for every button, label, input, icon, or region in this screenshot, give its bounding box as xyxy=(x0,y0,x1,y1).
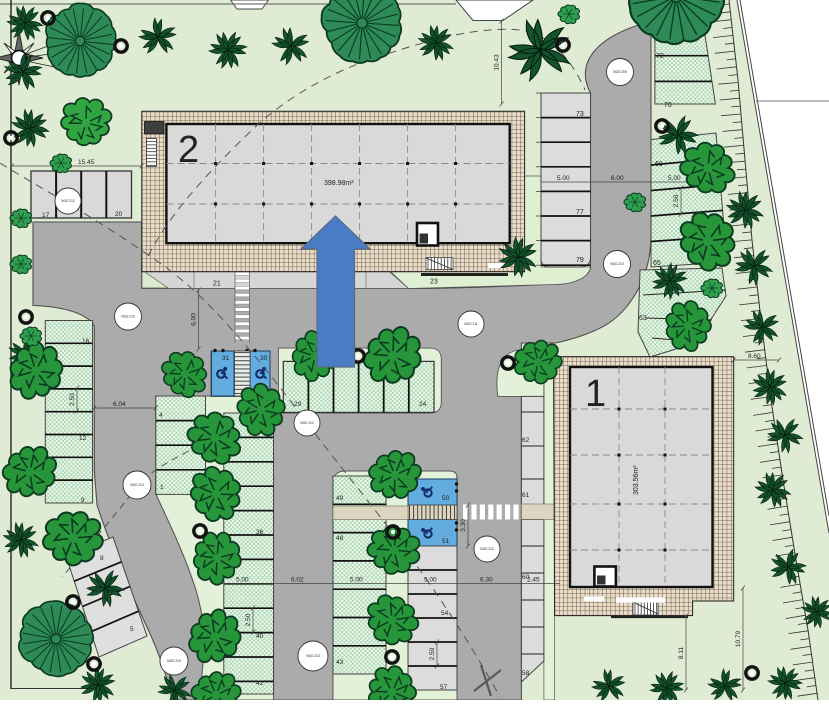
svg-text:72: 72 xyxy=(656,53,664,60)
svg-text:4: 4 xyxy=(159,412,163,419)
svg-text:9: 9 xyxy=(81,497,85,504)
svg-text:23: 23 xyxy=(430,279,438,286)
svg-text:6.02: 6.02 xyxy=(291,577,304,584)
svg-text:20: 20 xyxy=(115,211,123,218)
svg-text:77: 77 xyxy=(576,209,584,216)
svg-text:1: 1 xyxy=(585,373,606,415)
svg-text:5.00: 5.00 xyxy=(236,577,249,584)
svg-text:5.00: 5.00 xyxy=(557,175,570,182)
svg-text:6.00: 6.00 xyxy=(191,313,198,326)
svg-text:NGG 214: NGG 214 xyxy=(130,483,144,487)
svg-text:NGG 213: NGG 213 xyxy=(306,654,320,658)
svg-text:10.43: 10.43 xyxy=(494,54,501,71)
svg-text:30: 30 xyxy=(260,355,268,362)
svg-text:15.45: 15.45 xyxy=(78,159,95,166)
svg-text:10.79: 10.79 xyxy=(735,630,742,647)
svg-text:29: 29 xyxy=(294,401,302,408)
svg-text:2: 2 xyxy=(178,129,199,171)
svg-text:8.11: 8.11 xyxy=(678,647,685,660)
svg-text:NGG 212: NGG 212 xyxy=(61,199,75,203)
svg-text:79: 79 xyxy=(576,257,584,264)
svg-text:2.45: 2.45 xyxy=(527,577,540,584)
svg-text:24: 24 xyxy=(419,401,427,408)
svg-text:58: 58 xyxy=(522,670,530,677)
svg-text:NGG 211: NGG 211 xyxy=(464,322,477,326)
svg-text:303.56m²: 303.56m² xyxy=(633,465,640,495)
svg-text:NGG 209: NGG 209 xyxy=(613,70,627,74)
svg-text:50: 50 xyxy=(442,495,450,502)
svg-text:2.50: 2.50 xyxy=(245,613,252,626)
svg-text:62: 62 xyxy=(522,437,530,444)
svg-text:70: 70 xyxy=(664,102,672,109)
svg-text:NGG 216: NGG 216 xyxy=(121,315,135,319)
svg-text:40: 40 xyxy=(256,633,264,640)
svg-text:61: 61 xyxy=(522,492,530,499)
svg-text:8.60: 8.60 xyxy=(748,353,761,360)
svg-text:5.00: 5.00 xyxy=(424,577,437,584)
svg-text:57: 57 xyxy=(440,684,448,691)
svg-text:54: 54 xyxy=(441,610,449,617)
svg-text:43: 43 xyxy=(336,659,344,666)
svg-text:5.00: 5.00 xyxy=(668,175,681,182)
svg-text:NGG 212: NGG 212 xyxy=(300,421,314,425)
svg-text:NGG 210: NGG 210 xyxy=(610,262,624,266)
svg-text:73: 73 xyxy=(576,111,584,118)
svg-text:63: 63 xyxy=(639,315,647,322)
svg-text:6.30: 6.30 xyxy=(480,577,493,584)
svg-text:6.00: 6.00 xyxy=(611,175,624,182)
svg-text:8: 8 xyxy=(100,555,104,562)
svg-text:2.50: 2.50 xyxy=(673,194,680,207)
svg-text:69: 69 xyxy=(655,161,663,168)
svg-text:12: 12 xyxy=(79,435,87,442)
svg-text:2.50: 2.50 xyxy=(429,647,436,660)
svg-text:6.04: 6.04 xyxy=(113,401,126,408)
svg-text:2.50: 2.50 xyxy=(69,393,76,406)
svg-text:36: 36 xyxy=(256,529,264,536)
svg-text:16: 16 xyxy=(82,338,90,345)
svg-text:398.98m²: 398.98m² xyxy=(324,180,354,187)
svg-text:5: 5 xyxy=(130,626,134,633)
svg-text:21: 21 xyxy=(213,281,221,288)
svg-text:5.00: 5.00 xyxy=(350,577,363,584)
svg-text:51: 51 xyxy=(442,538,450,545)
svg-text:31: 31 xyxy=(222,355,230,362)
svg-text:48: 48 xyxy=(336,535,344,542)
svg-text:NGG 212: NGG 212 xyxy=(480,547,494,551)
svg-text:3.30: 3.30 xyxy=(460,519,467,532)
svg-text:17: 17 xyxy=(42,212,50,219)
svg-text:1: 1 xyxy=(160,484,164,491)
svg-text:65: 65 xyxy=(653,260,661,267)
svg-text:49: 49 xyxy=(336,495,344,502)
svg-text:NGG 215: NGG 215 xyxy=(167,659,181,663)
svg-text:42: 42 xyxy=(256,680,264,687)
